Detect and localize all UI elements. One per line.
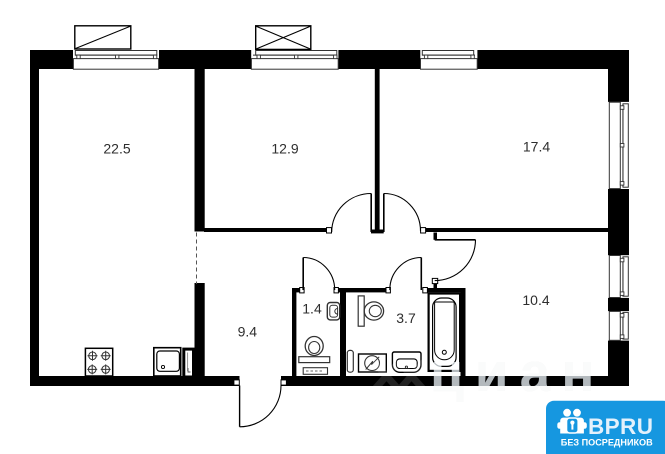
svg-text:3.7: 3.7	[396, 310, 416, 326]
svg-text:17.4: 17.4	[523, 139, 550, 155]
svg-text:BPRU: BPRU	[588, 414, 653, 439]
svg-text:22.5: 22.5	[103, 141, 130, 157]
svg-text:10.4: 10.4	[522, 292, 549, 308]
svg-text:1.4: 1.4	[302, 301, 322, 317]
svg-text:циан: циан	[430, 341, 605, 403]
svg-text:БЕЗ ПОСРЕДНИКОВ: БЕЗ ПОСРЕДНИКОВ	[561, 438, 653, 448]
svg-text:12.9: 12.9	[271, 141, 298, 157]
svg-text:9.4: 9.4	[238, 324, 258, 340]
